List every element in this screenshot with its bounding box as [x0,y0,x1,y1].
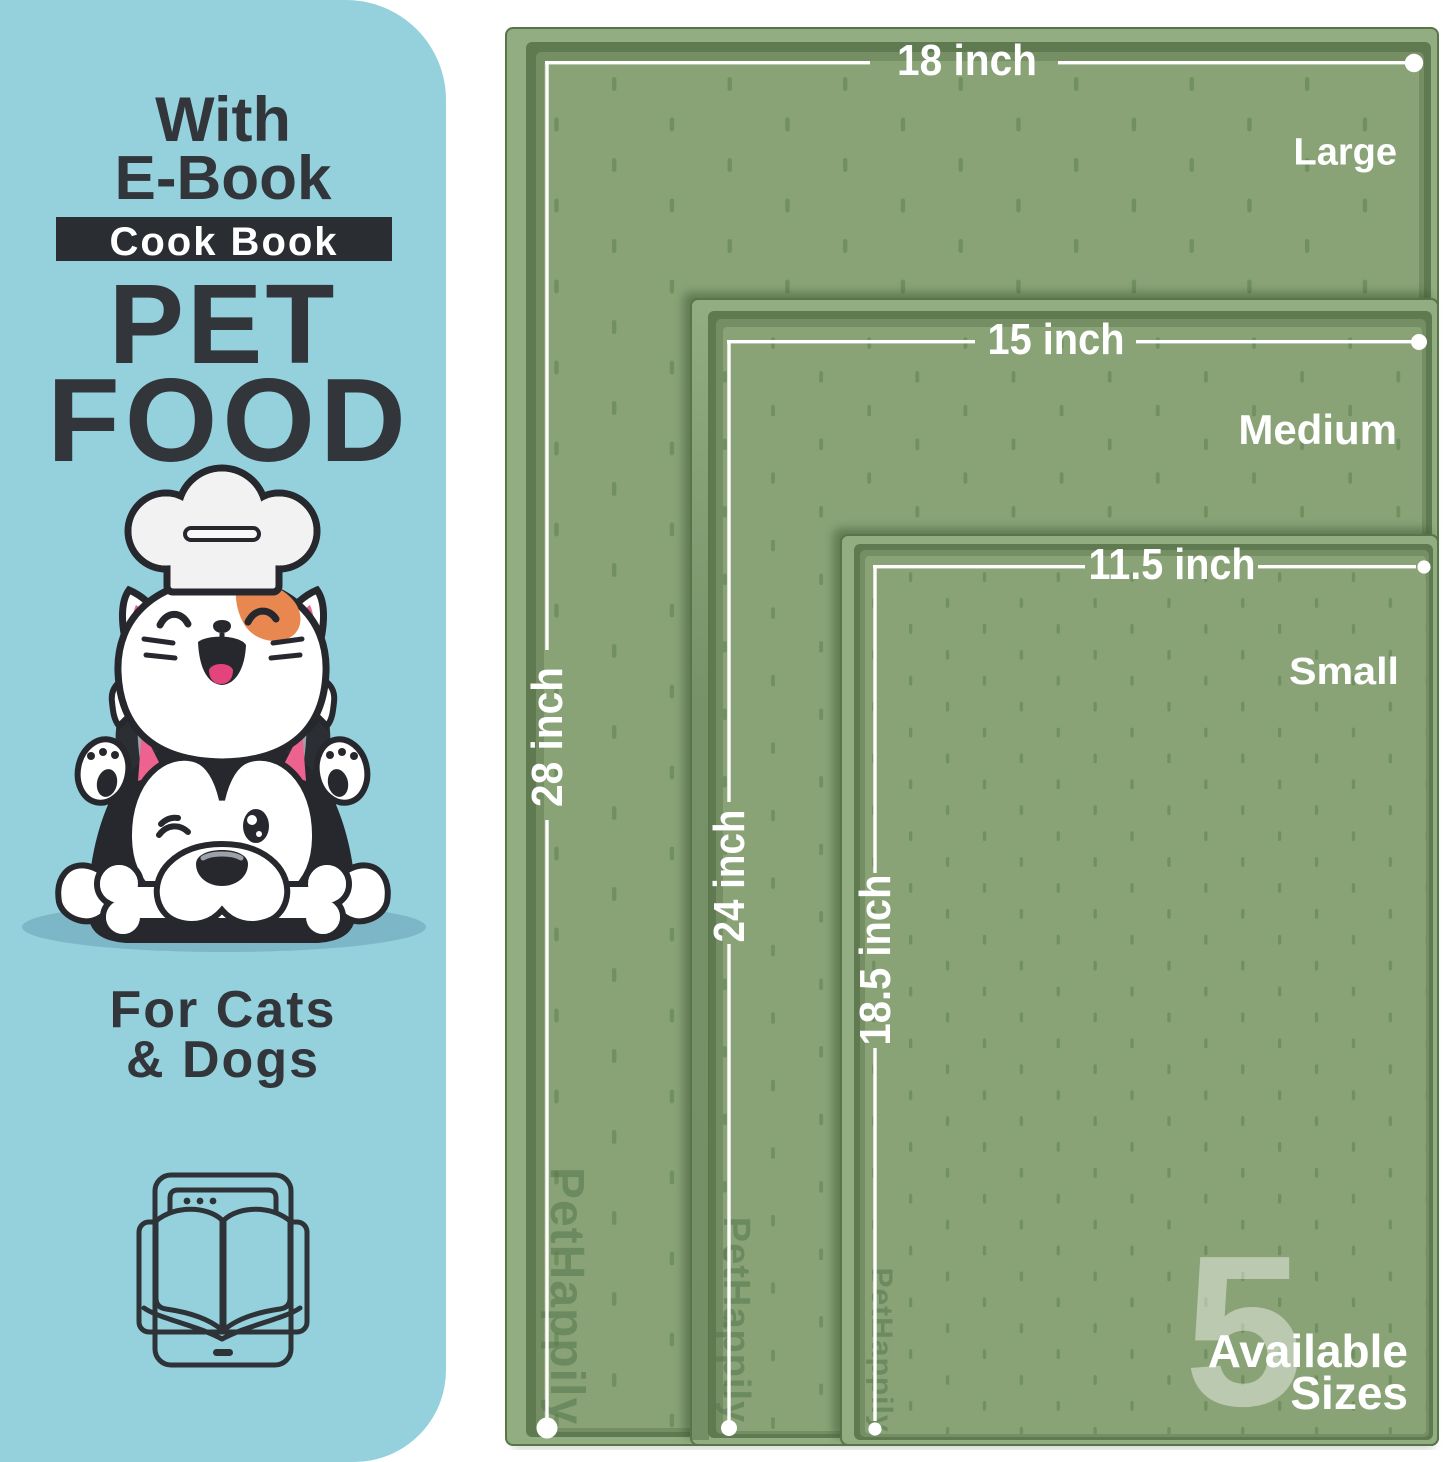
svg-text:18.5 inch: 18.5 inch [851,875,900,1046]
svg-text:PetHappily: PetHappily [715,1217,757,1423]
svg-text:24 inch: 24 inch [705,810,754,943]
svg-text:11.5 inch: 11.5 inch [1089,540,1256,589]
svg-text:18 inch: 18 inch [897,36,1037,85]
svg-text:Medium: Medium [1238,406,1397,453]
svg-text:15 inch: 15 inch [988,315,1125,364]
svg-text:Sizes: Sizes [1290,1367,1408,1419]
svg-text:28 inch: 28 inch [523,667,572,807]
svg-text:PetHappily: PetHappily [865,1267,898,1432]
svg-text:Small: Small [1289,651,1399,693]
svg-text:Large: Large [1294,132,1397,174]
